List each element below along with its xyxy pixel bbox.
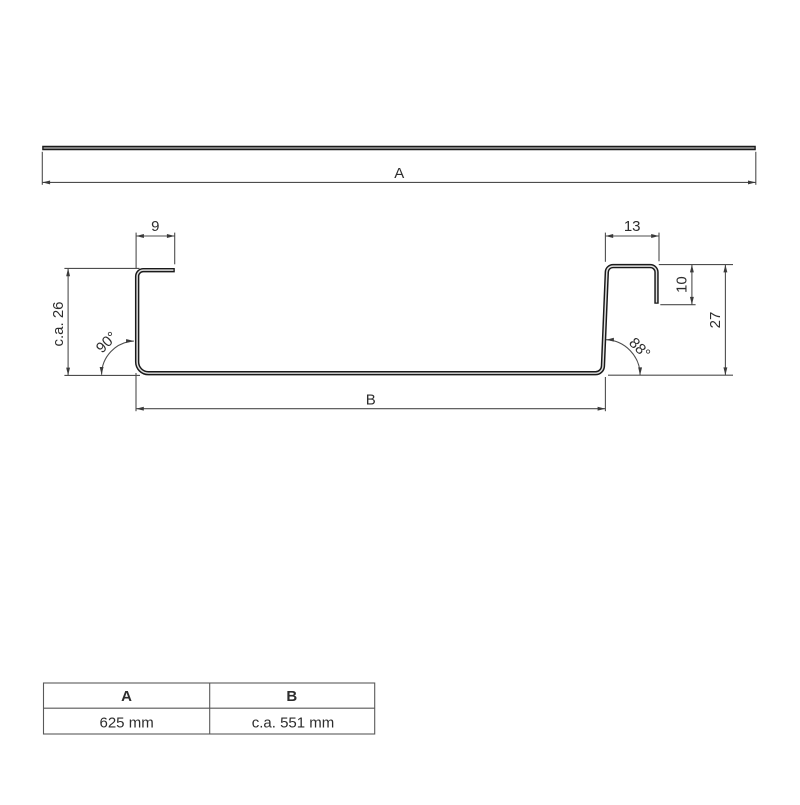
svg-text:B: B <box>286 688 297 705</box>
svg-text:10: 10 <box>673 276 690 293</box>
svg-text:c.a. 551 mm: c.a. 551 mm <box>252 715 335 732</box>
svg-text:13: 13 <box>624 218 641 235</box>
svg-text:B: B <box>366 392 376 409</box>
svg-text:625 mm: 625 mm <box>100 715 154 732</box>
svg-text:A: A <box>121 688 132 705</box>
svg-text:A: A <box>394 165 404 182</box>
svg-text:9: 9 <box>151 218 159 235</box>
svg-text:27: 27 <box>707 312 724 329</box>
svg-text:c.a. 26: c.a. 26 <box>50 301 67 346</box>
